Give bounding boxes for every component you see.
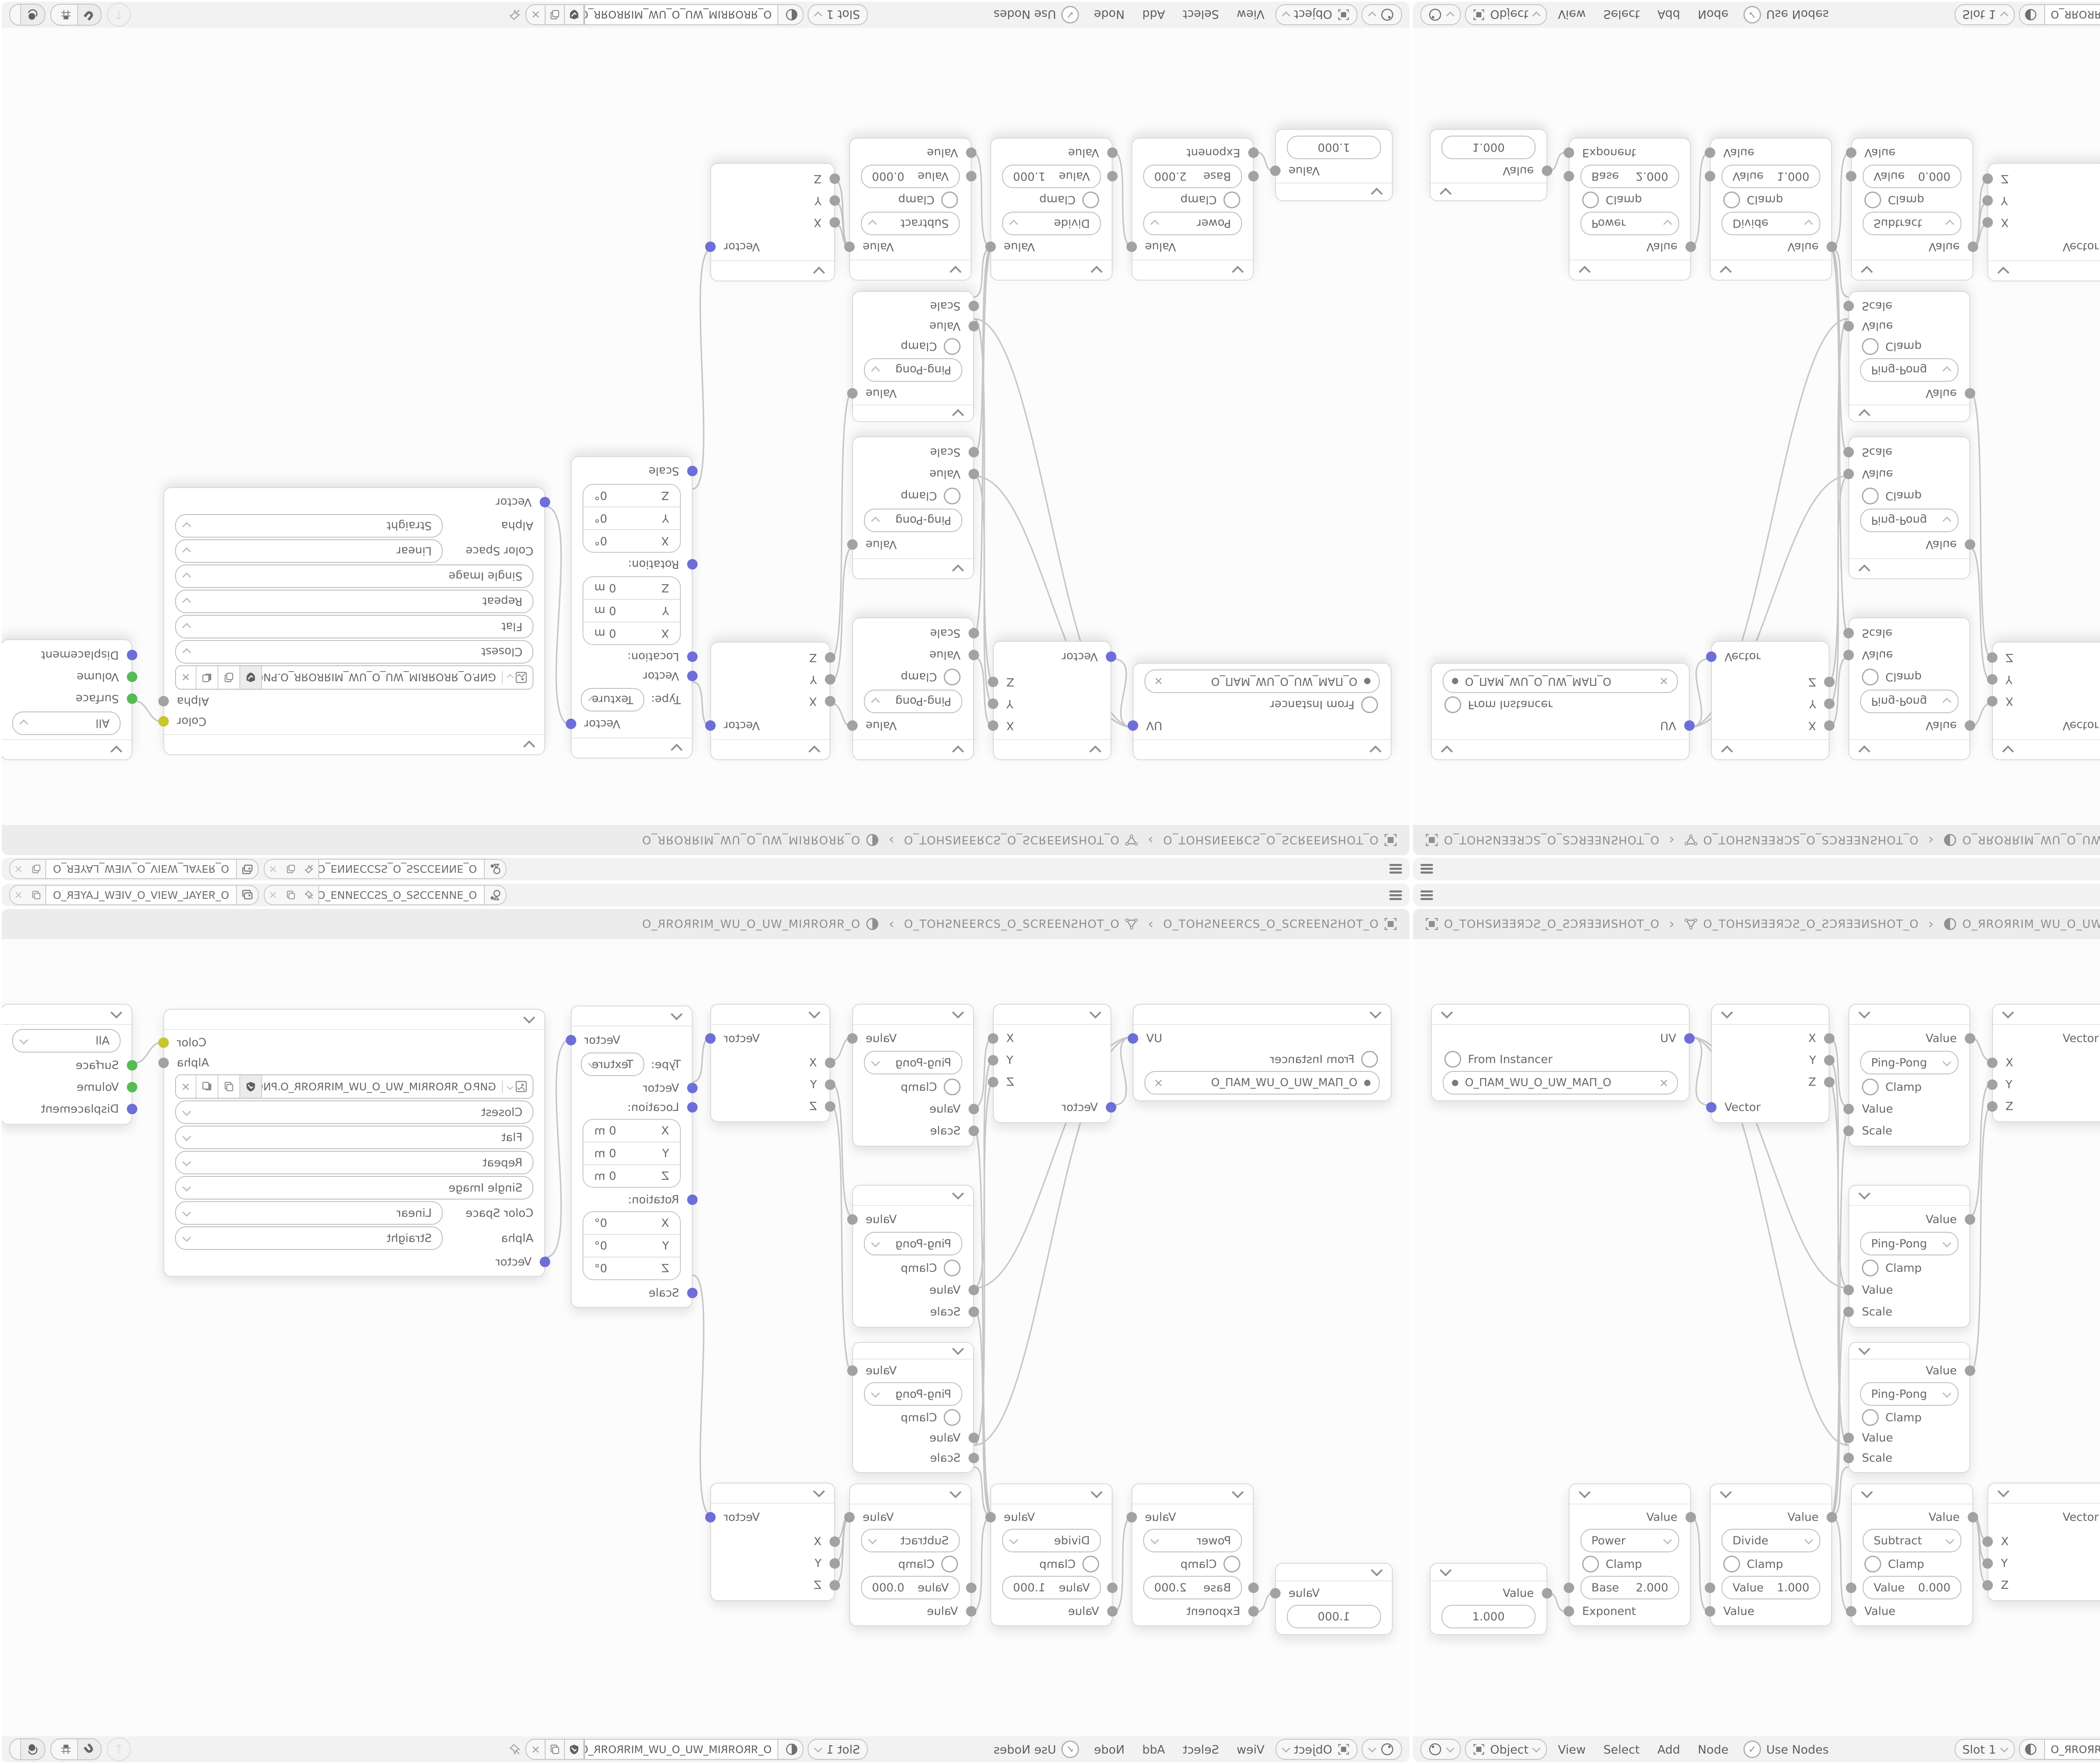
value-input-socket[interactable]	[1705, 171, 1715, 182]
value-output-socket[interactable]	[847, 1365, 858, 1376]
clamp-checkbox[interactable]	[941, 1556, 958, 1572]
math-ping-pong-node[interactable]: Value Ping-Pong Clamp Value Scale	[1848, 1185, 1970, 1328]
operation-dropdown[interactable]: Ping-Pong	[1860, 1382, 1958, 1406]
clamp-checkbox[interactable]	[1862, 1409, 1879, 1426]
source-dropdown[interactable]: Single Image	[175, 1176, 533, 1200]
uv-map-selector[interactable]: O_ПAM_WU_O_UW_MAП_O ×	[1144, 1071, 1380, 1095]
node-collapse-header[interactable]	[1134, 739, 1391, 759]
close-icon[interactable]: ×	[265, 889, 281, 901]
scale-input-socket[interactable]	[1843, 1453, 1854, 1463]
scale-input-socket[interactable]	[1843, 447, 1854, 458]
node-collapse-header[interactable]	[991, 260, 1112, 280]
material-name[interactable]: O_ЯROЯRIM_WU_O_UW_MIЯROЯR_O	[2044, 1740, 2100, 1759]
combine-xyz-node[interactable]: Vector X Y Z	[1987, 1483, 2100, 1601]
combine-xyz-node[interactable]: Vector X Y Z	[1992, 642, 2100, 760]
combine-xyz-node[interactable]: Vector X Y Z	[1987, 163, 2100, 281]
slot-dropdown[interactable]: Slot 1	[808, 4, 867, 25]
view-layer-name[interactable]: O_ЯƎYAL_WƎIV_O_VIEW_LAYER_O	[45, 886, 237, 904]
value-input-socket[interactable]	[1846, 1583, 1856, 1593]
y-input-socket[interactable]	[1982, 1558, 1993, 1569]
value-field[interactable]: 1.000	[1441, 1605, 1536, 1628]
node-collapse-header[interactable]	[1712, 739, 1829, 759]
color-space-dropdown[interactable]: Linear	[175, 1201, 443, 1225]
uv-map-selector[interactable]: O_ПAM_WU_O_UW_MAП_O ×	[1144, 669, 1380, 693]
node-collapse-header[interactable]	[711, 260, 834, 281]
node-collapse-header[interactable]	[853, 739, 973, 759]
menu-select[interactable]: Select	[1597, 1743, 1646, 1756]
math-power-node[interactable]: Value Power Clamp Base2.000 Exponent	[1569, 138, 1691, 281]
close-icon[interactable]: ×	[1154, 1076, 1163, 1089]
math-ping-pong-node[interactable]: Value Ping-Pong Clamp Value Scale	[1848, 617, 1970, 760]
clamp-checkbox[interactable]	[944, 1260, 961, 1276]
value-input-socket[interactable]	[1846, 171, 1856, 182]
z-output-socket[interactable]	[988, 677, 998, 688]
extension-dropdown[interactable]: Repeat	[175, 590, 533, 613]
target-dropdown[interactable]: All	[12, 711, 121, 735]
slot-dropdown[interactable]: Slot 1	[1955, 1739, 2014, 1760]
node-collapse-header[interactable]	[850, 1484, 971, 1504]
clamp-checkbox[interactable]	[1223, 192, 1240, 208]
operation-dropdown[interactable]: Ping-Pong	[864, 358, 962, 382]
close-icon[interactable]: ×	[176, 666, 197, 689]
node-collapse-header[interactable]	[1988, 1483, 2100, 1504]
node-collapse-header[interactable]	[572, 738, 692, 758]
clamp-checkbox[interactable]	[944, 1079, 961, 1095]
image-texture-node[interactable]: Color Alpha GИP.O_ЯROЯRIM_WU_O_UW_MIЯROЯ…	[163, 1009, 545, 1277]
shader-mode-dropdown[interactable]: Object	[1276, 1739, 1357, 1760]
y-input-socket[interactable]	[829, 1558, 840, 1569]
exponent-input-socket[interactable]	[1564, 148, 1574, 158]
value-field[interactable]: Value1.000	[1002, 165, 1101, 188]
material-name[interactable]: O_ЯROЯRIM_WU_O_UW_MIЯROЯR_O	[584, 1740, 778, 1759]
operation-dropdown[interactable]: Ping-Pong	[1860, 509, 1958, 532]
pin-icon[interactable]	[300, 886, 318, 904]
image-datablock-row[interactable]: GИP.O_ЯROЯRIM_WU_O_UW_MIЯROЯR_O.PNG	[175, 1074, 533, 1099]
operation-dropdown[interactable]: Subtract	[1863, 212, 1961, 235]
parent-tree-button[interactable]: ↑	[107, 1737, 131, 1761]
vector-output-socket[interactable]	[566, 719, 576, 730]
math-ping-pong-node[interactable]: Value Ping-Pong Clamp Value Scale	[852, 1342, 974, 1473]
node-canvas[interactable]: UV From Instancer O_ПAM_WU_O_UW_MAП_O ×	[1413, 939, 2100, 1736]
value-input-socket[interactable]	[1843, 321, 1854, 332]
vector-input-socket[interactable]	[1706, 652, 1717, 662]
interpolation-dropdown[interactable]: Closest	[175, 1100, 533, 1124]
node-collapse-header[interactable]	[2, 1005, 131, 1025]
y-input-socket[interactable]	[1987, 1079, 1998, 1090]
material-selector[interactable]: O_ЯROЯRIM_WU_O_UW_MIЯROЯR_O ×	[525, 1739, 803, 1760]
vector-output-socket[interactable]	[705, 1033, 716, 1044]
value-output-socket[interactable]	[847, 1214, 858, 1225]
shading-dropdown[interactable]	[10, 5, 21, 25]
value-output-socket[interactable]	[1685, 1512, 1696, 1522]
value-output-socket[interactable]	[1827, 1512, 1837, 1522]
use-nodes-toggle[interactable]: ✓ Use Nodes	[994, 1740, 1079, 1758]
value-field[interactable]: 1.000	[1287, 136, 1381, 159]
base-input-socket[interactable]	[1248, 1583, 1259, 1593]
math-power-node[interactable]: Value Power Clamp Base2.000 Exponent	[1569, 1483, 1691, 1626]
from-instancer-checkbox[interactable]	[1361, 1051, 1378, 1068]
operation-dropdown[interactable]: Divide	[1002, 1529, 1101, 1552]
scale-input-socket[interactable]	[969, 1307, 979, 1317]
use-nodes-toggle[interactable]: ✓ Use Nodes	[1743, 1740, 1829, 1758]
value-input-socket[interactable]	[966, 1583, 976, 1593]
copy-icon[interactable]	[27, 860, 45, 878]
value-input-socket[interactable]	[1843, 1285, 1854, 1295]
menu-view[interactable]: View	[1230, 1743, 1271, 1756]
close-icon[interactable]: ×	[526, 5, 546, 24]
combine-xyz-node[interactable]: Vector X Y Z	[710, 163, 835, 281]
value-output-socket[interactable]	[1968, 1512, 1978, 1522]
base-input-socket[interactable]	[1564, 171, 1574, 182]
menu-view[interactable]: View	[1551, 1743, 1592, 1756]
math-subtract-node[interactable]: Value Subtract Clamp Value0.000 Value	[849, 138, 971, 281]
close-icon[interactable]: ×	[1659, 675, 1669, 688]
operation-dropdown[interactable]: Ping-Pong	[1860, 358, 1958, 382]
from-instancer-checkbox[interactable]	[1444, 1051, 1461, 1068]
vector-output-socket[interactable]	[566, 1035, 576, 1045]
menu-add[interactable]: Add	[1651, 8, 1687, 22]
operation-dropdown[interactable]: Subtract	[1863, 1529, 1961, 1552]
scale-input-socket[interactable]	[1843, 1126, 1854, 1136]
z-input-socket[interactable]	[1982, 1580, 1993, 1591]
value-input-socket[interactable]	[1705, 1606, 1715, 1617]
math-subtract-node[interactable]: Value Subtract Clamp Value0.000 Value	[1851, 1483, 1973, 1626]
value-input-socket[interactable]	[1843, 650, 1854, 661]
value-output-socket[interactable]	[1542, 1588, 1552, 1599]
value-input-socket[interactable]	[969, 1433, 979, 1443]
x-input-socket[interactable]	[1987, 696, 1998, 707]
value-input-socket[interactable]	[1846, 1606, 1856, 1617]
rotation-fields[interactable]: X0° Y0° Z0°	[583, 1211, 681, 1280]
separate-xyz-node[interactable]: X Y Z Vector	[993, 641, 1111, 760]
combine-xyz-node[interactable]: Vector X Y Z	[1992, 1004, 2100, 1122]
scale-input-socket[interactable]	[1843, 301, 1854, 312]
close-icon[interactable]: ×	[1154, 675, 1163, 688]
image-icon[interactable]	[503, 666, 533, 689]
editor-type-dropdown[interactable]	[1362, 1739, 1402, 1760]
vector-output-socket[interactable]	[705, 1512, 716, 1522]
math-subtract-node[interactable]: Value Subtract Clamp Value0.000 Value	[849, 1483, 971, 1626]
operation-dropdown[interactable]: Ping-Pong	[864, 690, 962, 713]
menu-add[interactable]: Add	[1136, 8, 1172, 22]
extension-dropdown[interactable]: Repeat	[175, 1151, 533, 1174]
value-node[interactable]: Value 1.000	[1430, 1563, 1547, 1635]
value-output-socket[interactable]	[1965, 1365, 1975, 1376]
value-field[interactable]: Value0.000	[861, 165, 960, 188]
clamp-checkbox[interactable]	[1082, 1556, 1099, 1572]
scene-name[interactable]: O_ƎИИƎƆƆSƧ_O_ƧSƆƆƎИИƎ_O	[318, 886, 485, 904]
base-field[interactable]: Base2.000	[1143, 165, 1242, 188]
base-field[interactable]: Base2.000	[1580, 165, 1679, 188]
menu-view[interactable]: View	[1551, 8, 1592, 22]
math-ping-pong-node[interactable]: Value Ping-Pong Clamp Value Scale	[852, 1004, 974, 1147]
x-output-socket[interactable]	[1824, 1033, 1835, 1044]
image-texture-node[interactable]: Color Alpha GИP.O_ЯROЯRIM_WU_O_UW_MIЯROЯ…	[163, 487, 545, 755]
value-output-socket[interactable]	[1270, 1588, 1281, 1599]
uv-map-node[interactable]: UV From Instancer O_ПAM_WU_O_UW_MAП_O ×	[1431, 663, 1690, 760]
value-output-socket[interactable]	[1965, 1033, 1975, 1044]
from-instancer-checkbox[interactable]	[1444, 696, 1461, 713]
use-nodes-toggle[interactable]: ✓ Use Nodes	[994, 6, 1079, 24]
value-field[interactable]: Value0.000	[1863, 165, 1961, 188]
image-datablock-row[interactable]: GИP.O_ЯROЯRIM_WU_O_UW_MIЯROЯR_O.PNG	[175, 665, 533, 690]
clamp-checkbox[interactable]	[1582, 1556, 1599, 1572]
clamp-checkbox[interactable]	[1723, 192, 1740, 208]
interpolation-dropdown[interactable]: Closest	[175, 640, 533, 664]
image-filename[interactable]: GИP.O_ЯROЯRIM_WU_O_UW_MIЯROЯR_O.PNG	[262, 672, 503, 684]
editor-type-dropdown[interactable]	[1420, 1739, 1461, 1760]
node-collapse-header[interactable]	[164, 734, 544, 754]
operation-dropdown[interactable]: Power	[1143, 212, 1242, 235]
vector-input-socket[interactable]	[687, 1083, 698, 1093]
value-output-socket[interactable]	[985, 242, 996, 252]
value-output-socket[interactable]	[847, 721, 858, 731]
menu-select[interactable]: Select	[1176, 8, 1226, 22]
scene-selector[interactable]: O_ƎИИƎƆƆSƧ_O_ƧSƆƆƎИИƎ_O ×	[264, 885, 507, 905]
separate-xyz-node[interactable]: X Y Z Vector	[1711, 641, 1830, 760]
magnet-icon[interactable]	[78, 1739, 101, 1759]
uv-map-node[interactable]: UV From Instancer O_ПAM_WU_O_UW_MAП_O ×	[1133, 663, 1391, 760]
operation-dropdown[interactable]: Ping-Pong	[1860, 690, 1958, 713]
projection-dropdown[interactable]: Flat	[175, 615, 533, 638]
material-output-node[interactable]: All Surface Volume Displacement	[2, 639, 132, 760]
scale-input-socket[interactable]	[1843, 628, 1854, 639]
displacement-input-socket[interactable]	[127, 1104, 137, 1114]
mapping-node[interactable]: Vector Type: Texture Vector Location: X0…	[571, 456, 693, 759]
unpack-icon[interactable]	[197, 666, 218, 689]
vector-input-socket[interactable]	[540, 1257, 550, 1267]
value-output-socket[interactable]	[1965, 1214, 1975, 1225]
operation-dropdown[interactable]: Ping-Pong	[864, 1232, 962, 1255]
operation-dropdown[interactable]: Subtract	[861, 1529, 960, 1552]
location-fields[interactable]: X0 m Y0 m Z0 m	[583, 1119, 681, 1188]
vector-output-socket[interactable]	[705, 721, 716, 731]
node-collapse-header[interactable]	[1711, 1484, 1831, 1504]
slot-dropdown[interactable]: Slot 1	[808, 1739, 867, 1760]
node-collapse-header[interactable]	[1712, 1005, 1829, 1025]
color-output-socket[interactable]	[158, 1037, 169, 1048]
value-node[interactable]: Value 1.000	[1430, 129, 1547, 201]
value-output-socket[interactable]	[847, 540, 858, 550]
node-collapse-header[interactable]	[1432, 739, 1689, 759]
hamburger-menu-icon[interactable]	[1420, 890, 1433, 892]
y-input-socket[interactable]	[825, 1079, 835, 1090]
combine-xyz-node[interactable]: Vector X Y Z	[710, 1483, 835, 1601]
material-name[interactable]: O_ЯROЯRIM_WU_O_UW_MIЯROЯR_O	[2044, 5, 2100, 24]
separate-xyz-node[interactable]: X Y Z Vector	[1711, 1004, 1830, 1123]
node-collapse-header[interactable]	[991, 1484, 1112, 1504]
use-nodes-toggle[interactable]: ✓ Use Nodes	[1743, 6, 1829, 24]
projection-dropdown[interactable]: Flat	[175, 1126, 533, 1149]
scene-selector[interactable]: O_ƎИИƎƆƆSƧ_O_ƧSƆƆƎИИƎ_O ×	[264, 859, 507, 879]
exponent-input-socket[interactable]	[1248, 1606, 1259, 1617]
node-collapse-header[interactable]	[1134, 1005, 1391, 1025]
math-divide-node[interactable]: Value Divide Clamp Value1.000 Value	[1710, 138, 1832, 281]
location-input-socket[interactable]	[687, 1102, 698, 1113]
operation-dropdown[interactable]: Subtract	[861, 212, 960, 235]
value-output-socket[interactable]	[844, 1512, 855, 1522]
x-output-socket[interactable]	[988, 721, 998, 731]
value-input-socket[interactable]	[969, 1104, 979, 1114]
menu-select[interactable]: Select	[1176, 1743, 1226, 1756]
y-output-socket[interactable]	[988, 1055, 998, 1066]
vector-output-socket[interactable]	[705, 242, 716, 252]
base-field[interactable]: Base2.000	[1580, 1576, 1679, 1599]
editor-type-dropdown[interactable]	[1420, 4, 1461, 25]
node-collapse-header[interactable]	[1849, 1186, 1969, 1206]
location-fields[interactable]: X0 m Y0 m Z0 m	[583, 576, 681, 645]
value-input-socket[interactable]	[1846, 148, 1856, 158]
node-collapse-header[interactable]	[1849, 1005, 1969, 1025]
operation-dropdown[interactable]: Divide	[1722, 212, 1820, 235]
z-input-socket[interactable]	[1987, 653, 1998, 663]
node-collapse-header[interactable]	[853, 1186, 973, 1206]
menu-add[interactable]: Add	[1651, 1743, 1687, 1756]
operation-dropdown[interactable]: Ping-Pong	[864, 509, 962, 532]
node-collapse-header[interactable]	[711, 1483, 834, 1504]
math-ping-pong-node[interactable]: Value Ping-Pong Clamp Value Scale	[1848, 291, 1970, 422]
node-collapse-header[interactable]	[1849, 558, 1969, 578]
color-output-socket[interactable]	[158, 717, 169, 727]
clamp-checkbox[interactable]	[1862, 338, 1879, 355]
shader-mode-dropdown[interactable]: Object	[1465, 4, 1547, 25]
clamp-checkbox[interactable]	[1223, 1556, 1240, 1572]
fake-user-shield-icon[interactable]	[240, 1075, 262, 1098]
value-input-socket[interactable]	[1705, 148, 1715, 158]
value-node[interactable]: Value 1.000	[1275, 129, 1393, 201]
math-divide-node[interactable]: Value Divide Clamp Value1.000 Value	[990, 1483, 1113, 1626]
math-ping-pong-node[interactable]: Value Ping-Pong Clamp Value Scale	[852, 436, 974, 579]
node-canvas[interactable]: UV From Instancer O_ПAM_WU_O_UW_MAП_O ×	[2, 939, 1410, 1736]
pin-icon[interactable]	[300, 860, 318, 878]
node-collapse-header[interactable]	[1132, 1484, 1253, 1504]
value-field[interactable]: Value1.000	[1002, 1576, 1101, 1599]
uv-map-node[interactable]: UV From Instancer O_ПAM_WU_O_UW_MAП_O ×	[1431, 1004, 1690, 1101]
copy-icon[interactable]	[546, 1740, 565, 1759]
shader-mode-dropdown[interactable]: Object	[1465, 1739, 1547, 1760]
math-power-node[interactable]: Value Power Clamp Base2.000 Exponent	[1131, 1483, 1254, 1626]
clamp-checkbox[interactable]	[1082, 192, 1099, 208]
view-layer-selector[interactable]: O_ЯƎYAL_WƎIV_O_VIEW_LAYER_O ×	[9, 885, 259, 905]
clamp-checkbox[interactable]	[944, 1409, 961, 1426]
node-collapse-header[interactable]	[1570, 260, 1690, 280]
node-collapse-header[interactable]	[1849, 1343, 1969, 1360]
from-instancer-checkbox[interactable]	[1361, 696, 1378, 713]
mapping-type-dropdown[interactable]: Texture	[581, 688, 644, 711]
value-input-socket[interactable]	[969, 1285, 979, 1295]
fake-user-shield-icon[interactable]	[565, 1740, 584, 1759]
operation-dropdown[interactable]: Power	[1143, 1529, 1242, 1552]
uv-output-socket[interactable]	[1684, 1033, 1695, 1044]
z-output-socket[interactable]	[988, 1077, 998, 1087]
node-canvas[interactable]: UV From Instancer O_ПAM_WU_O_UW_MAП_O ×	[1413, 28, 2100, 825]
view-layer-name[interactable]: O_ЯƎYAL_WƎIV_O_VIEW_LAYER_O	[45, 860, 237, 878]
node-collapse-header[interactable]	[1431, 183, 1546, 200]
shading-dropdown[interactable]	[10, 1739, 21, 1759]
z-input-socket[interactable]	[825, 1101, 835, 1112]
scale-input-socket[interactable]	[1843, 1307, 1854, 1317]
menu-node[interactable]: Node	[1691, 1743, 1735, 1756]
node-collapse-header[interactable]	[853, 404, 973, 421]
scale-input-socket[interactable]	[969, 1453, 979, 1463]
shading-sphere-icon[interactable]	[21, 5, 45, 25]
copy-icon[interactable]	[281, 886, 300, 904]
combine-xyz-node[interactable]: Vector X Y Z	[710, 1004, 830, 1122]
copy-icon[interactable]	[27, 886, 45, 904]
z-input-socket[interactable]	[1982, 174, 1993, 184]
value-output-socket[interactable]	[1126, 1512, 1137, 1522]
node-collapse-header[interactable]	[853, 558, 973, 578]
x-output-socket[interactable]	[988, 1033, 998, 1044]
close-icon[interactable]: ×	[10, 863, 27, 875]
value-output-socket[interactable]	[1126, 242, 1137, 252]
math-ping-pong-node[interactable]: Value Ping-Pong Clamp Value Scale	[852, 1185, 974, 1328]
math-subtract-node[interactable]: Value Subtract Clamp Value0.000 Value	[1851, 138, 1973, 281]
value-field[interactable]: Value0.000	[1863, 1576, 1961, 1599]
scale-input-socket[interactable]	[969, 1126, 979, 1136]
value-field[interactable]: Value1.000	[1722, 1576, 1820, 1599]
parent-tree-button[interactable]: ↑	[107, 3, 131, 27]
image-icon[interactable]	[503, 1075, 533, 1098]
value-input-socket[interactable]	[1843, 469, 1854, 480]
math-divide-node[interactable]: Value Divide Clamp Value1.000 Value	[990, 138, 1113, 281]
copy-icon[interactable]	[281, 860, 300, 878]
operation-dropdown[interactable]: Ping-Pong	[864, 1051, 962, 1074]
y-output-socket[interactable]	[988, 699, 998, 709]
clamp-checkbox[interactable]	[944, 669, 961, 685]
clamp-checkbox[interactable]	[1862, 488, 1879, 504]
y-input-socket[interactable]	[1982, 196, 1993, 206]
alpha-output-socket[interactable]	[158, 1058, 169, 1068]
x-input-socket[interactable]	[825, 1058, 835, 1068]
material-output-node[interactable]: All Surface Volume Displacement	[2, 1004, 132, 1125]
hamburger-menu-icon[interactable]	[1389, 890, 1402, 892]
math-power-node[interactable]: Value Power Clamp Base2.000 Exponent	[1131, 138, 1254, 281]
shading-sphere-icon[interactable]	[21, 1739, 45, 1759]
node-collapse-header[interactable]	[1432, 1005, 1689, 1025]
clamp-checkbox[interactable]	[1862, 669, 1879, 685]
material-selector[interactable]: O_ЯROЯRIM_WU_O_UW_MIЯROЯR_O ×	[2019, 1739, 2100, 1760]
material-selector[interactable]: O_ЯROЯRIM_WU_O_UW_MIЯROЯR_O ×	[2019, 4, 2100, 25]
alpha-mode-dropdown[interactable]: Straight	[175, 1226, 443, 1250]
node-collapse-header[interactable]	[1988, 260, 2100, 281]
node-collapse-header[interactable]	[164, 1010, 544, 1030]
close-icon[interactable]: ×	[265, 863, 281, 875]
value-field[interactable]: 1.000	[1287, 1605, 1381, 1628]
close-icon[interactable]: ×	[526, 1740, 546, 1759]
pin-icon[interactable]	[509, 1743, 521, 1756]
copy-icon[interactable]	[218, 666, 240, 689]
node-collapse-header[interactable]	[1993, 1005, 2100, 1025]
node-collapse-header[interactable]	[853, 1343, 973, 1360]
value-output-socket[interactable]	[1270, 166, 1281, 176]
x-input-socket[interactable]	[1987, 1058, 1998, 1068]
copy-icon[interactable]	[546, 5, 565, 24]
math-ping-pong-node[interactable]: Value Ping-Pong Clamp Value Scale	[1848, 1004, 1970, 1147]
value-input-socket[interactable]	[966, 1606, 976, 1617]
node-collapse-header[interactable]	[2, 739, 131, 759]
z-input-socket[interactable]	[1987, 1101, 1998, 1112]
base-field[interactable]: Base2.000	[1143, 1576, 1242, 1599]
scale-input-socket[interactable]	[687, 1288, 698, 1298]
value-output-socket[interactable]	[847, 1033, 858, 1044]
math-ping-pong-node[interactable]: Value Ping-Pong Clamp Value Scale	[852, 617, 974, 760]
menu-node[interactable]: Node	[1087, 8, 1131, 22]
value-input-socket[interactable]	[1107, 1583, 1118, 1593]
node-collapse-header[interactable]	[1852, 260, 1972, 280]
node-collapse-header[interactable]	[850, 260, 971, 280]
z-output-socket[interactable]	[1824, 1077, 1835, 1087]
